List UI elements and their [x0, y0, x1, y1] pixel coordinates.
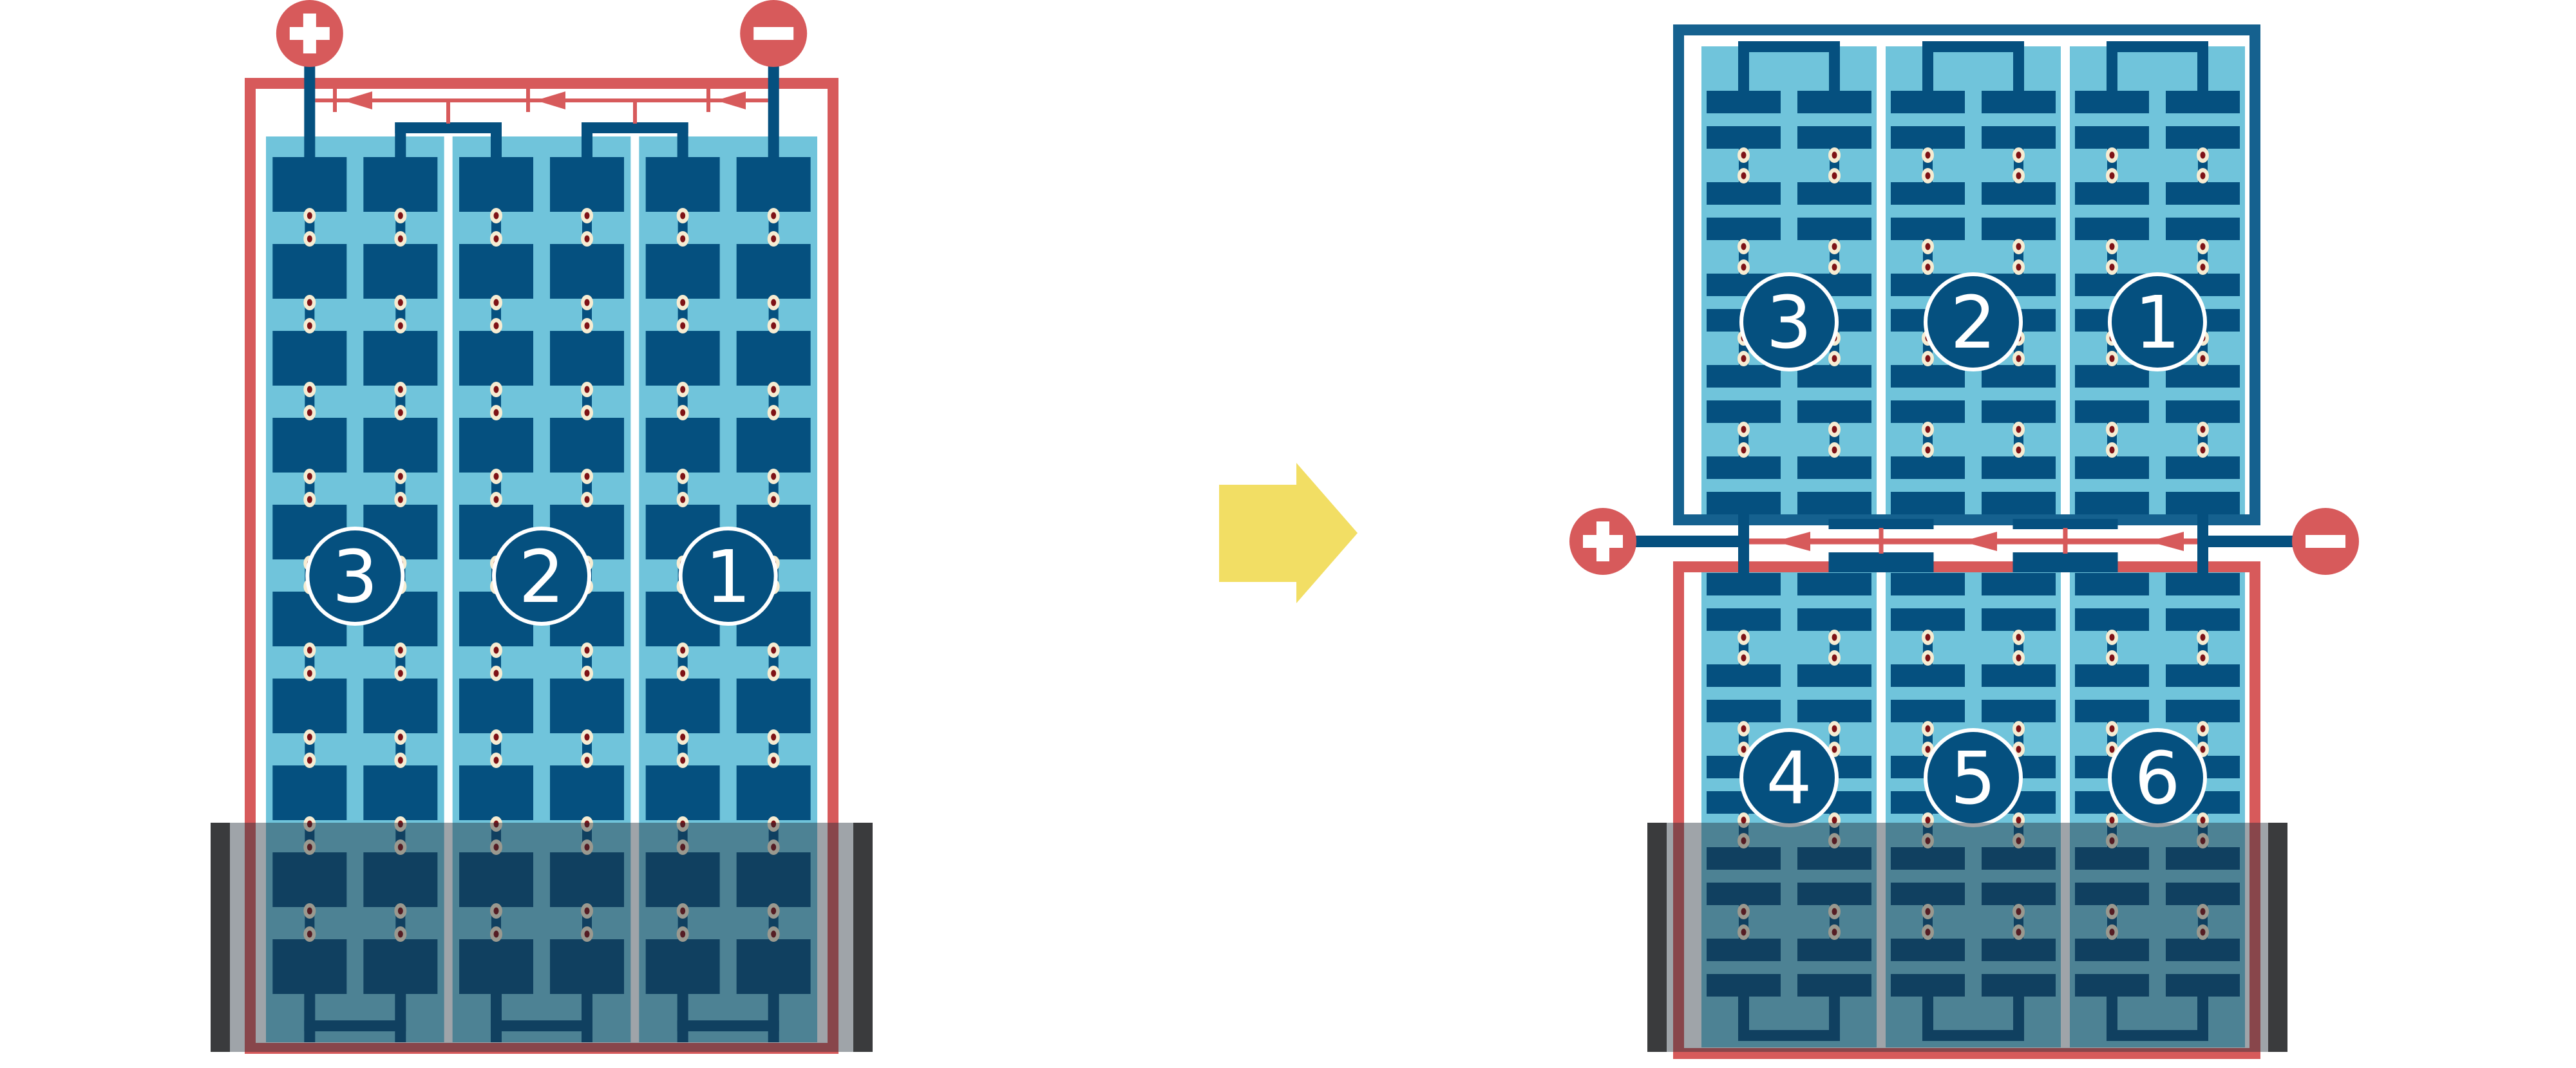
electrode-plate — [2075, 608, 2149, 631]
electrode-plate — [1891, 126, 1965, 149]
rivet-dot-core — [2110, 746, 2115, 753]
bridge-leg — [491, 122, 502, 158]
electrode-plate — [2075, 664, 2149, 687]
rivet-dot-core — [398, 496, 403, 503]
rivet-dot-core — [398, 386, 403, 393]
battery-cell-number: 1 — [681, 529, 776, 624]
electrode-plate — [1891, 365, 1965, 388]
rivet-dot-core — [2201, 355, 2206, 362]
rivet-dot-core — [2110, 726, 2115, 733]
electrode-plate — [1891, 608, 1965, 631]
rivet-dot-core — [2201, 152, 2206, 159]
electrode-plate — [1982, 456, 2056, 479]
rivet-dot-core — [2016, 426, 2022, 433]
diagram-canvas: +−321 321456+− — [0, 0, 2576, 1068]
rivet-dot-core — [2201, 634, 2206, 641]
terminal-bar — [2208, 536, 2293, 547]
electrode-plate — [1982, 573, 2056, 595]
flow-tick — [333, 89, 337, 112]
electrode-plate — [1707, 700, 1781, 722]
electrode-plate — [737, 765, 811, 820]
rivet-dot-core — [585, 409, 590, 417]
battery-cell-number: 1 — [2110, 274, 2205, 370]
cell-number-label: 6 — [2134, 737, 2180, 821]
rivet-dot-core — [585, 323, 590, 330]
electrode-plate — [363, 679, 437, 733]
rivet-dot-core — [585, 299, 590, 306]
electrode-plate — [1982, 700, 2056, 722]
rivet-dot-core — [771, 670, 776, 677]
rivet-dot-core — [771, 496, 776, 503]
rivet-dot-core — [680, 496, 685, 503]
electrode-plate — [1707, 456, 1781, 479]
cell-number-label: 2 — [1950, 281, 1996, 365]
electrode-plate — [646, 418, 720, 473]
rivet-dot-core — [1926, 634, 1931, 641]
rivet-dot-core — [771, 236, 776, 243]
flow-tick — [1879, 528, 1884, 554]
electrode-plate — [1797, 182, 1871, 205]
rivet-dot-core — [585, 236, 590, 243]
electrode-plate — [646, 244, 720, 299]
cell-number-label: 2 — [518, 536, 564, 619]
electrode-plate — [2075, 91, 2149, 113]
battery-cell-number: 6 — [2110, 730, 2205, 825]
battery-cell-number: 3 — [1741, 274, 1837, 370]
rivet-dot-core — [307, 734, 312, 741]
electrode-plate — [550, 331, 624, 386]
electrode-plate — [2075, 126, 2149, 149]
flow-branch-stub — [446, 100, 450, 124]
rivet-dot-core — [1741, 634, 1747, 641]
electrode-plate — [272, 157, 346, 212]
electrode-plate — [1707, 400, 1781, 423]
electrode-plate — [2166, 126, 2240, 149]
rivet-dot-core — [680, 299, 685, 306]
electrode-plate — [737, 418, 811, 473]
electrode-plate — [737, 331, 811, 386]
electrode-plate — [1982, 400, 2056, 423]
electrode-plate — [737, 244, 811, 299]
water-edge-bar — [1647, 823, 1667, 1052]
rivet-dot-core — [2110, 447, 2115, 454]
electrode-plate — [1797, 91, 1871, 113]
rivet-dot-core — [2201, 726, 2206, 733]
unit-tab-upper — [2013, 519, 2118, 529]
rivet-dot-core — [307, 386, 312, 393]
electrode-plate — [363, 765, 437, 820]
plus-terminal-icon-glyph — [303, 14, 316, 53]
rivet-dot-core — [1832, 634, 1837, 641]
rivet-dot-core — [1741, 152, 1747, 159]
electrode-plate — [550, 244, 624, 299]
top-link-leg — [2013, 41, 2024, 92]
flow-arrowhead-icon — [536, 91, 565, 109]
rivet-dot-core — [680, 757, 685, 764]
rivet-dot-core — [2016, 447, 2022, 454]
electrode-plate — [2166, 400, 2240, 423]
rivet-dot-core — [2201, 746, 2206, 753]
rivet-dot-core — [307, 647, 312, 654]
rivet-dot-core — [1741, 264, 1747, 271]
electrode-plate — [363, 157, 437, 212]
minus-terminal-icon-glyph — [2306, 535, 2345, 548]
unit-tab-lower — [1829, 552, 1934, 572]
rivet-dot-core — [1926, 243, 1931, 250]
bridge-bar — [395, 122, 502, 133]
electrode-plate — [1797, 400, 1871, 423]
electrode-plate — [272, 765, 346, 820]
electrode-plate — [1707, 492, 1781, 514]
electrode-plate — [1797, 573, 1871, 595]
electrode-plate — [459, 157, 533, 212]
rivet-dot-core — [307, 409, 312, 417]
electrode-plate — [1797, 700, 1871, 722]
rivet-dot-core — [585, 473, 590, 480]
rivet-dot-core — [2110, 355, 2115, 362]
rivet-dot-core — [1926, 655, 1931, 662]
plus-terminal-icon: + — [1569, 508, 1636, 575]
rivet-dot-core — [585, 386, 590, 393]
battery-cell-number: 2 — [1926, 274, 2021, 370]
electrode-plate — [1891, 91, 1965, 113]
rivet-dot-core — [1926, 817, 1931, 824]
electrode-plate — [1891, 573, 1965, 595]
bridge-leg — [677, 122, 688, 158]
rivet-dot-core — [1741, 173, 1747, 180]
rivet-dot-core — [2016, 243, 2022, 250]
flow-arrowhead-icon — [1775, 532, 1810, 551]
electrode-plate — [1891, 218, 1965, 240]
unit-tab-lower — [2013, 552, 2118, 572]
rivet-dot-core — [398, 670, 403, 677]
rivet-dot-core — [2201, 264, 2206, 271]
rivet-dot-core — [1741, 355, 1747, 362]
rivet-dot-core — [1926, 264, 1931, 271]
series-flow-line — [315, 89, 768, 124]
electrode-plate — [550, 765, 624, 820]
rivet-dot-core — [1832, 447, 1837, 454]
electrode-plate — [272, 244, 346, 299]
rivet-dot-core — [493, 386, 498, 393]
electrode-plate — [550, 157, 624, 212]
electrode-plate — [1707, 573, 1781, 595]
rivet-dot-core — [771, 647, 776, 654]
top-link-bar — [1922, 41, 2024, 52]
rivet-dot-core — [2016, 655, 2022, 662]
rivet-dot-core — [2110, 634, 2115, 641]
rivet-dot-core — [307, 299, 312, 306]
rivet-dot-core — [2110, 264, 2115, 271]
rivet-dot-core — [1741, 726, 1747, 733]
rivet-dot-core — [2016, 173, 2022, 180]
minus-terminal-icon: − — [2292, 508, 2359, 575]
top-link-leg — [2107, 41, 2117, 92]
rivet-dot-core — [307, 670, 312, 677]
flow-arrowhead-icon — [2148, 532, 2184, 551]
rivet-dot-core — [2110, 173, 2115, 180]
rivet-dot-core — [398, 757, 403, 764]
arrow-body — [1219, 485, 1296, 582]
electrode-plate — [1891, 664, 1965, 687]
rivet-dot-core — [2201, 817, 2206, 824]
rivet-dot-core — [2016, 152, 2022, 159]
rivet-dot-core — [1832, 264, 1837, 271]
battery-split-diagram-figure: +−321 321456+− — [0, 0, 2576, 1068]
rivet-dot-core — [680, 734, 685, 741]
rivet-dot-core — [1741, 655, 1747, 662]
electrode-plate — [1707, 218, 1781, 240]
electrode-plate — [1891, 492, 1965, 514]
rivet-dot-core — [771, 734, 776, 741]
electrode-plate — [272, 331, 346, 386]
battery-cell-number: 3 — [307, 529, 402, 624]
rivet-dot-core — [771, 323, 776, 330]
electrode-plate — [1982, 182, 2056, 205]
rivet-dot-core — [1832, 355, 1837, 362]
rivet-dot-core — [1741, 447, 1747, 454]
electrode-plate — [1707, 91, 1781, 113]
rivet-dot-core — [680, 212, 685, 220]
rivet-dot-core — [2016, 355, 2022, 362]
electrode-plate — [363, 331, 437, 386]
rivet-dot-core — [398, 236, 403, 243]
rivet-dot-core — [493, 473, 498, 480]
rivet-dot-core — [1741, 817, 1747, 824]
rivet-dot-core — [771, 386, 776, 393]
rivet-dot-core — [680, 386, 685, 393]
water-immersion — [1647, 823, 2287, 1052]
electrode-plate — [1707, 126, 1781, 149]
rivet-dot-core — [680, 236, 685, 243]
rivet-dot-core — [1832, 426, 1837, 433]
cell-number-label: 1 — [2134, 281, 2180, 365]
electrode-plate — [2075, 365, 2149, 388]
minus-terminal-icon: − — [740, 0, 807, 67]
rivet-dot-core — [398, 212, 403, 220]
plus-terminal-icon-glyph — [1596, 521, 1609, 561]
water-overlay — [211, 823, 873, 1052]
rivet-dot-core — [307, 323, 312, 330]
electrode-plate — [1707, 182, 1781, 205]
rivet-dot-core — [771, 212, 776, 220]
electrode-plate — [1797, 126, 1871, 149]
electrode-plate — [1982, 365, 2056, 388]
rivet-dot-core — [493, 299, 498, 306]
water-overlay — [1647, 823, 2287, 1052]
rivet-dot-core — [2110, 243, 2115, 250]
electrode-plate — [2166, 573, 2240, 595]
rivet-dot-core — [2016, 634, 2022, 641]
battery-cell-number: 2 — [494, 529, 589, 624]
electrode-plate — [2166, 608, 2240, 631]
electrode-plate — [363, 418, 437, 473]
electrode-plate — [550, 679, 624, 733]
electrode-plate — [1797, 456, 1871, 479]
electrode-plate — [2075, 400, 2149, 423]
rivet-dot-core — [307, 236, 312, 243]
rivet-dot-core — [771, 409, 776, 417]
electrode-plate — [737, 679, 811, 733]
electrode-plate — [459, 679, 533, 733]
top-link-leg — [1738, 41, 1749, 92]
top-link-bar — [1738, 41, 1840, 52]
rivet-dot-core — [493, 734, 498, 741]
electrode-plate — [459, 244, 533, 299]
rivet-dot-core — [1926, 726, 1931, 733]
rivet-dot-core — [2110, 426, 2115, 433]
rivet-dot-core — [680, 647, 685, 654]
electrode-plate — [1982, 664, 2056, 687]
rivet-dot-core — [1832, 243, 1837, 250]
rivet-dot-core — [398, 409, 403, 417]
rivet-dot-core — [585, 670, 590, 677]
electrode-plate — [2166, 456, 2240, 479]
flow-arrowhead-icon — [716, 91, 746, 109]
electrode-plate — [1797, 218, 1871, 240]
rivet-dot-core — [1926, 152, 1931, 159]
bridge-leg — [395, 122, 406, 158]
rivet-dot-core — [585, 647, 590, 654]
rivet-dot-core — [307, 496, 312, 503]
electrode-plate — [646, 157, 720, 212]
electrode-plate — [646, 765, 720, 820]
electrode-plate — [1707, 365, 1781, 388]
battery-cell-number: 4 — [1741, 730, 1837, 825]
water-edge-bar — [2268, 823, 2287, 1052]
electrode-plate — [2166, 91, 2240, 113]
rivet-dot-core — [2201, 426, 2206, 433]
rivet-dot-core — [680, 473, 685, 480]
rivet-dot-core — [493, 236, 498, 243]
electrode-plate — [2166, 700, 2240, 722]
electrode-plate — [459, 765, 533, 820]
electrode-plate — [2166, 182, 2240, 205]
rivet-dot-core — [585, 212, 590, 220]
rivet-dot-core — [307, 757, 312, 764]
rivet-dot-core — [1832, 152, 1837, 159]
rivet-dot-core — [2016, 746, 2022, 753]
rivet-dot-core — [680, 409, 685, 417]
rivet-dot-core — [2201, 655, 2206, 662]
rivet-dot-core — [1741, 426, 1747, 433]
rivet-dot-core — [307, 212, 312, 220]
electrode-plate — [1707, 664, 1781, 687]
rivet-dot-core — [2016, 817, 2022, 824]
rivet-dot-core — [771, 757, 776, 764]
rivet-dot-core — [771, 473, 776, 480]
rivet-dot-core — [1926, 426, 1931, 433]
rivet-dot-core — [2110, 655, 2115, 662]
water-immersion — [211, 823, 873, 1052]
electrode-plate — [1797, 608, 1871, 631]
electrode-plate — [363, 244, 437, 299]
transform-arrow-icon — [1219, 463, 1358, 603]
rivet-dot-core — [585, 757, 590, 764]
electrode-plate — [1891, 182, 1965, 205]
electrode-plate — [2166, 492, 2240, 514]
rivet-dot-core — [1926, 173, 1931, 180]
electrode-plate — [1982, 218, 2056, 240]
flow-arrowhead-icon — [1962, 532, 1997, 551]
rivet-dot-core — [771, 299, 776, 306]
rivet-dot-core — [493, 409, 498, 417]
left-diagram-series-battery: +−321 — [211, 0, 873, 1052]
rivet-dot-core — [1832, 655, 1837, 662]
electrode-plate — [1797, 365, 1871, 388]
rivet-dot-core — [680, 323, 685, 330]
electrode-plate — [2075, 573, 2149, 595]
rivet-dot-core — [680, 670, 685, 677]
plus-terminal-icon: + — [276, 0, 343, 67]
electrode-plate — [1982, 126, 2056, 149]
cell-number-label: 3 — [1766, 281, 1812, 365]
rivet-dot-core — [1741, 243, 1747, 250]
electrode-plate — [459, 418, 533, 473]
electrode-plate — [1982, 91, 2056, 113]
electrode-plate — [2075, 700, 2149, 722]
rivet-dot-core — [1926, 746, 1931, 753]
rivet-dot-core — [1832, 817, 1837, 824]
electrode-plate — [1891, 400, 1965, 423]
rivet-dot-core — [2016, 264, 2022, 271]
electrode-plate — [646, 679, 720, 733]
electrode-plate — [2166, 218, 2240, 240]
rivet-dot-core — [1832, 726, 1837, 733]
rivet-dot-core — [1926, 447, 1931, 454]
bridge-leg — [582, 122, 592, 158]
rivet-dot-core — [307, 473, 312, 480]
electrode-plate — [2166, 664, 2240, 687]
electrode-plate — [1797, 664, 1871, 687]
rivet-dot-core — [493, 496, 498, 503]
rivet-dot-core — [493, 647, 498, 654]
electrode-plate — [2075, 218, 2149, 240]
water-edge-bar — [211, 823, 230, 1052]
arrow-head — [1296, 463, 1358, 603]
rivet-dot-core — [398, 473, 403, 480]
electrode-plate — [646, 331, 720, 386]
rivet-dot-core — [2201, 243, 2206, 250]
unit-post — [1738, 514, 1749, 575]
cell-number-label: 5 — [1950, 737, 1996, 821]
water-edge-bar — [853, 823, 873, 1052]
cell-number-label: 4 — [1766, 737, 1812, 821]
rivet-dot-core — [2201, 447, 2206, 454]
rivet-dot-core — [1926, 355, 1931, 362]
cell-number-label: 3 — [332, 536, 378, 619]
electrode-plate — [2075, 456, 2149, 479]
electrode-plate — [2166, 365, 2240, 388]
rivet-dot-core — [398, 734, 403, 741]
rivet-dot-core — [493, 757, 498, 764]
electrode-plate — [1891, 700, 1965, 722]
terminal-bar — [1636, 536, 1738, 547]
rivet-dot-core — [398, 323, 403, 330]
rivet-dot-core — [2016, 726, 2022, 733]
electrode-plate — [1891, 456, 1965, 479]
minus-terminal-icon-glyph — [753, 27, 793, 40]
rivet-dot-core — [493, 212, 498, 220]
rivet-dot-core — [1741, 746, 1747, 753]
electrode-plate — [459, 331, 533, 386]
rivet-dot-core — [1832, 746, 1837, 753]
top-link-leg — [2197, 41, 2208, 92]
electrode-plate — [272, 418, 346, 473]
flow-tick — [2063, 528, 2068, 554]
electrode-plate — [2075, 182, 2149, 205]
flow-arrowhead-icon — [343, 91, 372, 109]
